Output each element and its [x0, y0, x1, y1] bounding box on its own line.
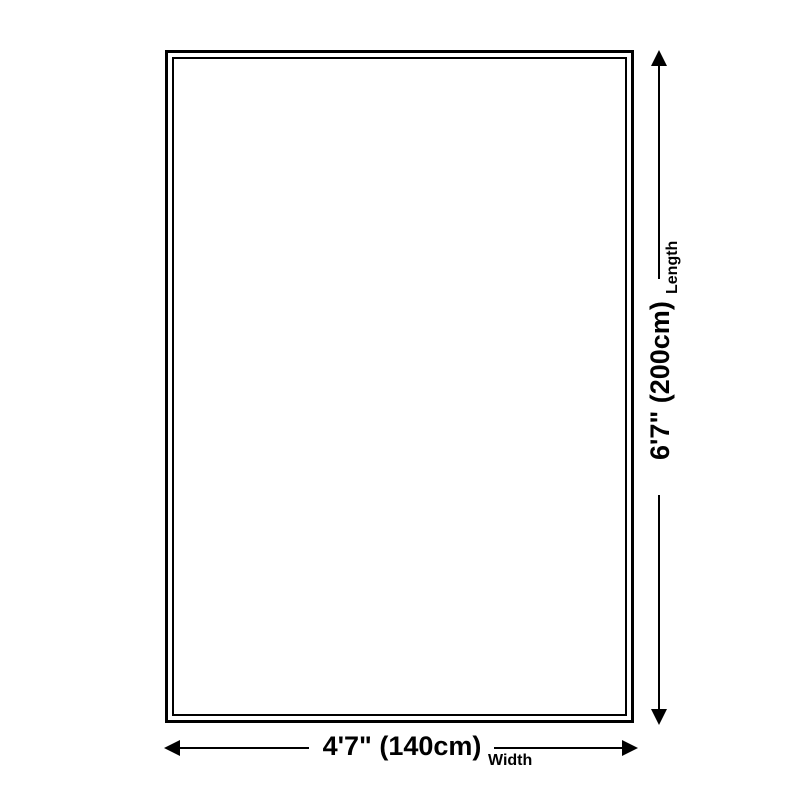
width-dimension-line-left [179, 747, 309, 750]
length-dimension-line-lower [658, 495, 661, 711]
rug-inner-outline [172, 57, 627, 716]
length-label: Length [664, 238, 682, 294]
width-value: 4'7" (140cm) [317, 731, 487, 762]
rug-outline [165, 50, 634, 723]
width-label: Width [488, 752, 532, 770]
length-value: 6'7" (200cm) [645, 308, 676, 460]
width-dimension-line-right [494, 747, 623, 750]
arrow-down-icon [651, 709, 667, 725]
arrow-right-icon [622, 740, 638, 756]
arrow-left-icon [164, 740, 180, 756]
length-dimension-line-upper [658, 64, 661, 279]
